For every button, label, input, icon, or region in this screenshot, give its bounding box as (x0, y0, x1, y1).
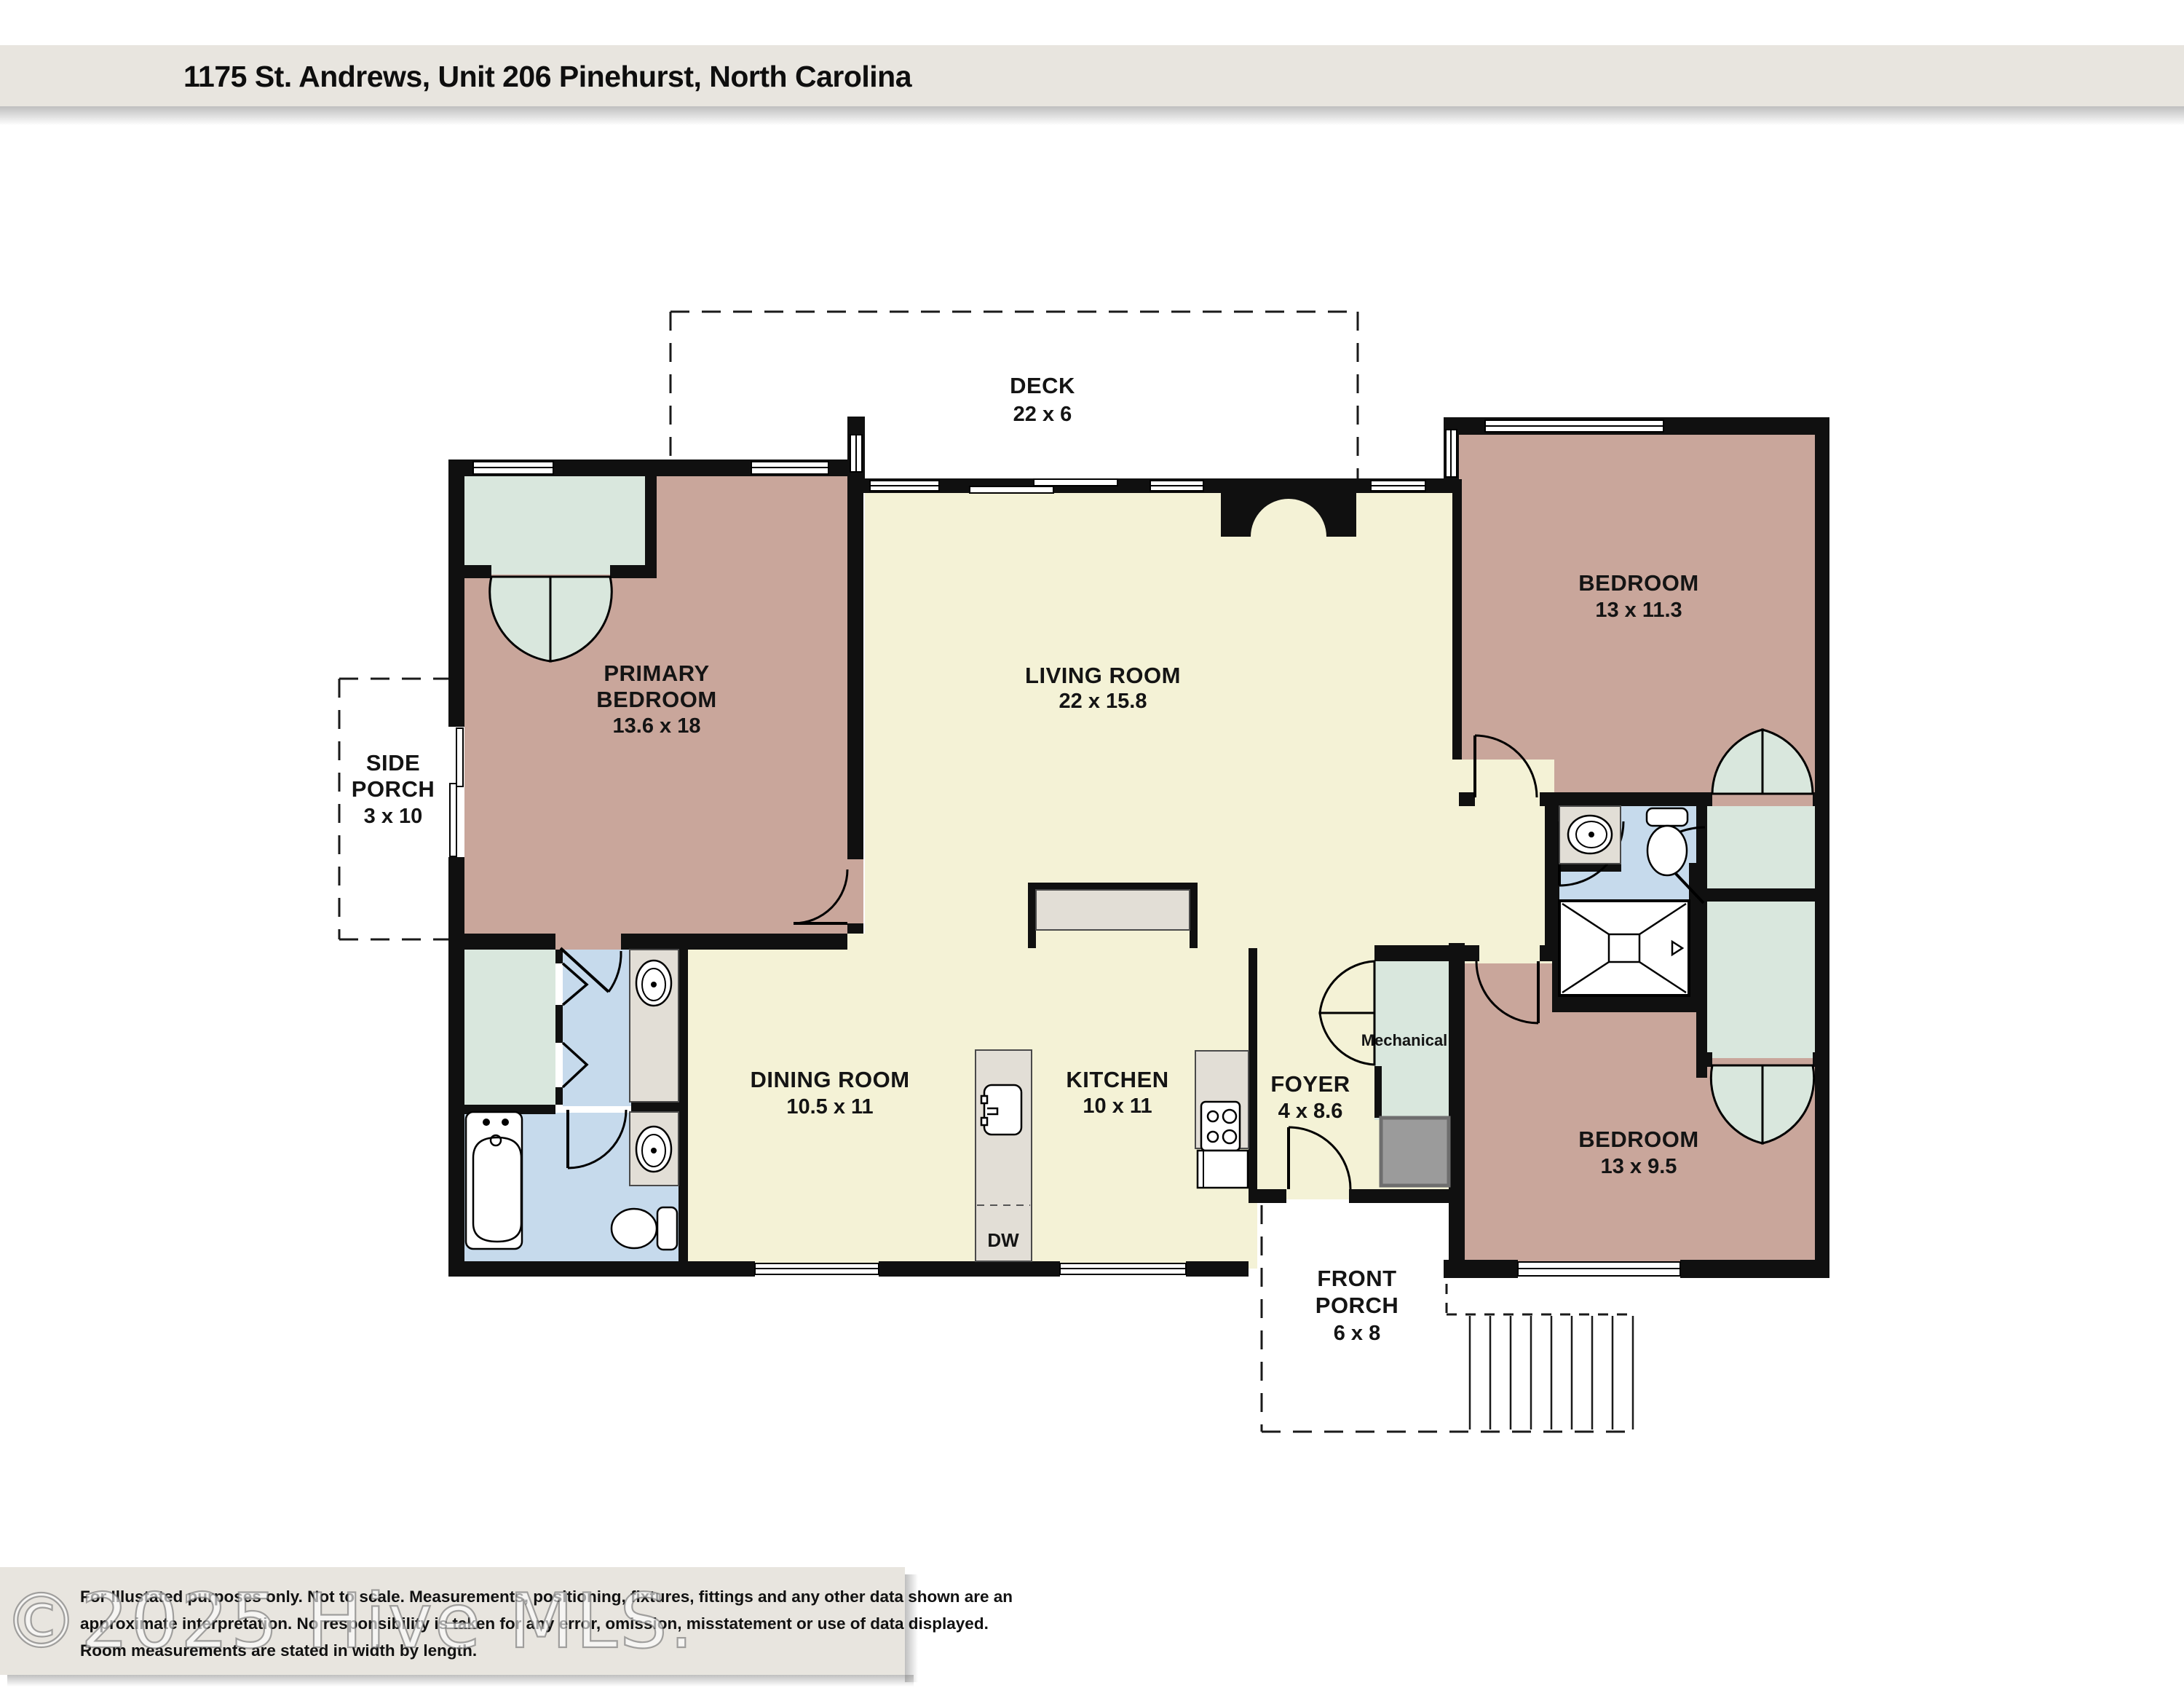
island-sink-icon (981, 1085, 1021, 1135)
living-room-label: LIVING ROOM (1025, 663, 1181, 688)
hallway-floor (1452, 760, 1554, 963)
refrigerator-icon (1198, 1151, 1248, 1188)
side-porch-dims: 3 x 10 (364, 805, 423, 828)
floorplan-canvas: 1175 St. Andrews, Unit 206 Pinehurst, No… (0, 0, 2184, 1688)
stove-icon (1201, 1102, 1240, 1151)
divider-cabinet (1036, 890, 1190, 930)
kitchen-dims: 10 x 11 (1083, 1095, 1152, 1118)
bedroom-bottom-dims: 13 x 9.5 (1601, 1155, 1677, 1178)
primary-bedroom-dims: 13.6 x 18 (613, 714, 701, 738)
entry-mat (1381, 1118, 1449, 1186)
side-porch-label-1: SIDE (366, 750, 420, 776)
dining-room-dims: 10.5 x 11 (786, 1095, 873, 1119)
window-bedroomtop-top (1485, 420, 1663, 432)
foyer-dims: 4 x 8.6 (1278, 1100, 1343, 1123)
shower-icon (1559, 901, 1689, 995)
deck-dims: 22 x 6 (1013, 403, 1072, 426)
toilet-icon-1 (612, 1207, 677, 1250)
dining-kitchen-floor (688, 934, 1257, 1269)
window-bedroomtop-left (1446, 430, 1457, 477)
stairs (1470, 1316, 1633, 1429)
window-bottom-2 (1060, 1263, 1186, 1274)
primary-closet-floor (464, 476, 645, 575)
living-room-dims: 22 x 15.8 (1059, 690, 1147, 713)
dishwasher-label: DW (987, 1229, 1019, 1251)
sink-icon-3 (1568, 816, 1612, 853)
front-porch-dims: 6 x 8 (1334, 1322, 1381, 1345)
window-living-2 (1150, 481, 1203, 491)
sink-icon-1 (636, 961, 671, 1006)
closet-bottomleft-floor (464, 950, 555, 1110)
side-porch-label-2: PORCH (352, 776, 435, 802)
window-living-3 (1371, 481, 1425, 491)
bedroom-bottom-label: BEDROOM (1578, 1127, 1698, 1152)
foyer-label: FOYER (1270, 1071, 1350, 1097)
header-shadow (0, 106, 2184, 125)
disclaimer-box: For Illustated purposes only. Not to sca… (0, 1567, 1013, 1687)
deck-label: DECK (1010, 373, 1075, 398)
page-title: 1175 St. Andrews, Unit 206 Pinehurst, No… (183, 60, 913, 93)
disclaimer-shadow-bottom (7, 1675, 914, 1687)
window-bottom-1 (755, 1263, 879, 1274)
slider-sideporch (450, 728, 463, 856)
bathtub-icon (466, 1112, 522, 1249)
kitchen-label: KITCHEN (1066, 1067, 1168, 1092)
bedroom-top-dims: 13 x 11.3 (1595, 599, 1682, 622)
arch-opening (1221, 493, 1356, 537)
window-topleft-1 (473, 462, 553, 474)
window-bedroombottom (1518, 1262, 1680, 1276)
watermark: ©2025 Hive MLS. (4, 1578, 695, 1665)
toilet-icon-2 (1647, 808, 1688, 875)
front-porch-label-2: PORCH (1315, 1293, 1398, 1318)
primary-bedroom-label-1: PRIMARY (604, 660, 709, 686)
dining-room-label: DINING ROOM (750, 1067, 909, 1092)
linen-closet-floor (1704, 806, 1815, 894)
window-step (850, 435, 862, 472)
window-living-1 (870, 481, 939, 491)
sink-icon-2 (636, 1127, 671, 1172)
window-topleft-2 (751, 462, 828, 474)
primary-bedroom-label-2: BEDROOM (596, 687, 716, 712)
front-porch-label-1: FRONT (1317, 1266, 1396, 1291)
closet-bottomright-floor (1704, 902, 1815, 1058)
header-bar: 1175 St. Andrews, Unit 206 Pinehurst, No… (0, 45, 2184, 125)
bedroom-top-label: BEDROOM (1578, 570, 1698, 596)
mechanical-label: Mechanical (1361, 1031, 1448, 1049)
